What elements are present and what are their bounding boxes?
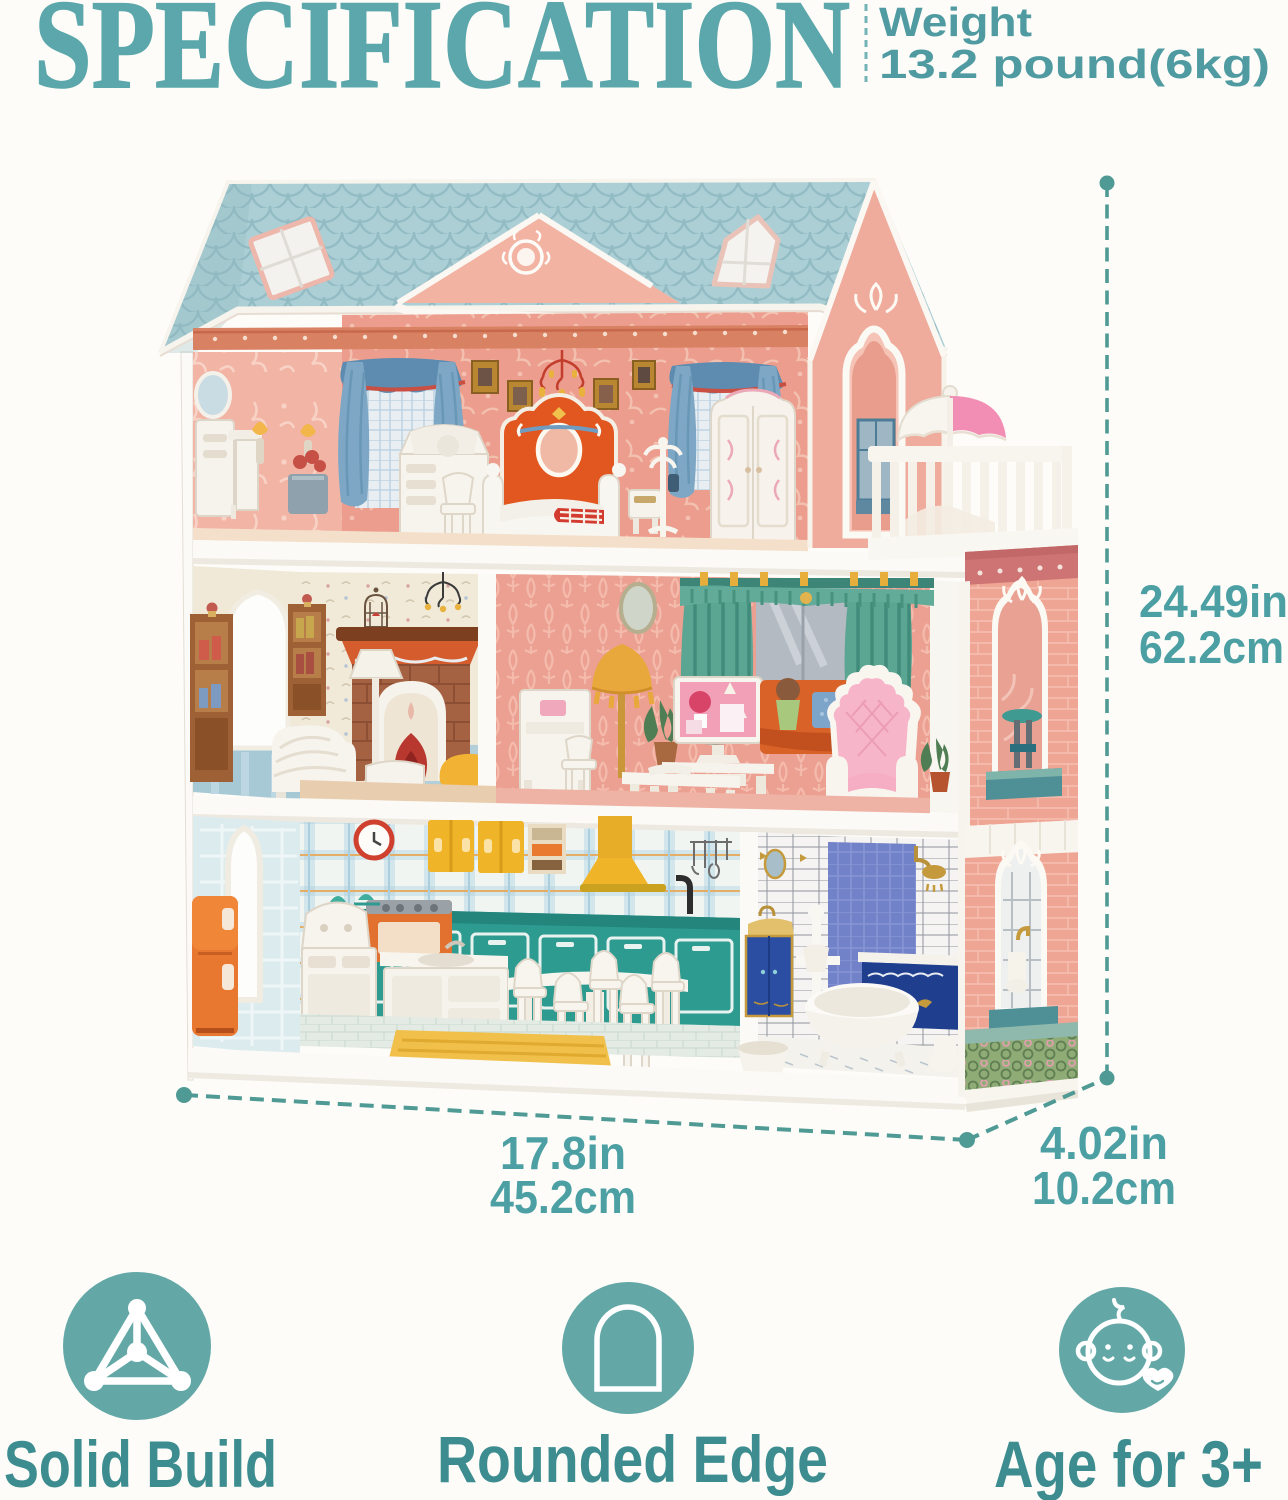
svg-text:SPECIFICATION: SPECIFICATION (34, 0, 850, 115)
svg-text:Rounded Edge: Rounded Edge (437, 1422, 828, 1496)
svg-text:Weight: Weight (879, 0, 1032, 45)
svg-text:10.2cm: 10.2cm (1032, 1162, 1176, 1214)
svg-text:13.2 pound(6kg): 13.2 pound(6kg) (879, 41, 1270, 87)
svg-text:Solid Build: Solid Build (4, 1427, 277, 1500)
svg-text:Age for 3+: Age for 3+ (994, 1427, 1263, 1500)
svg-text:62.2cm: 62.2cm (1139, 622, 1284, 673)
svg-text:45.2cm: 45.2cm (490, 1171, 636, 1223)
svg-text:24.49in: 24.49in (1139, 576, 1288, 627)
